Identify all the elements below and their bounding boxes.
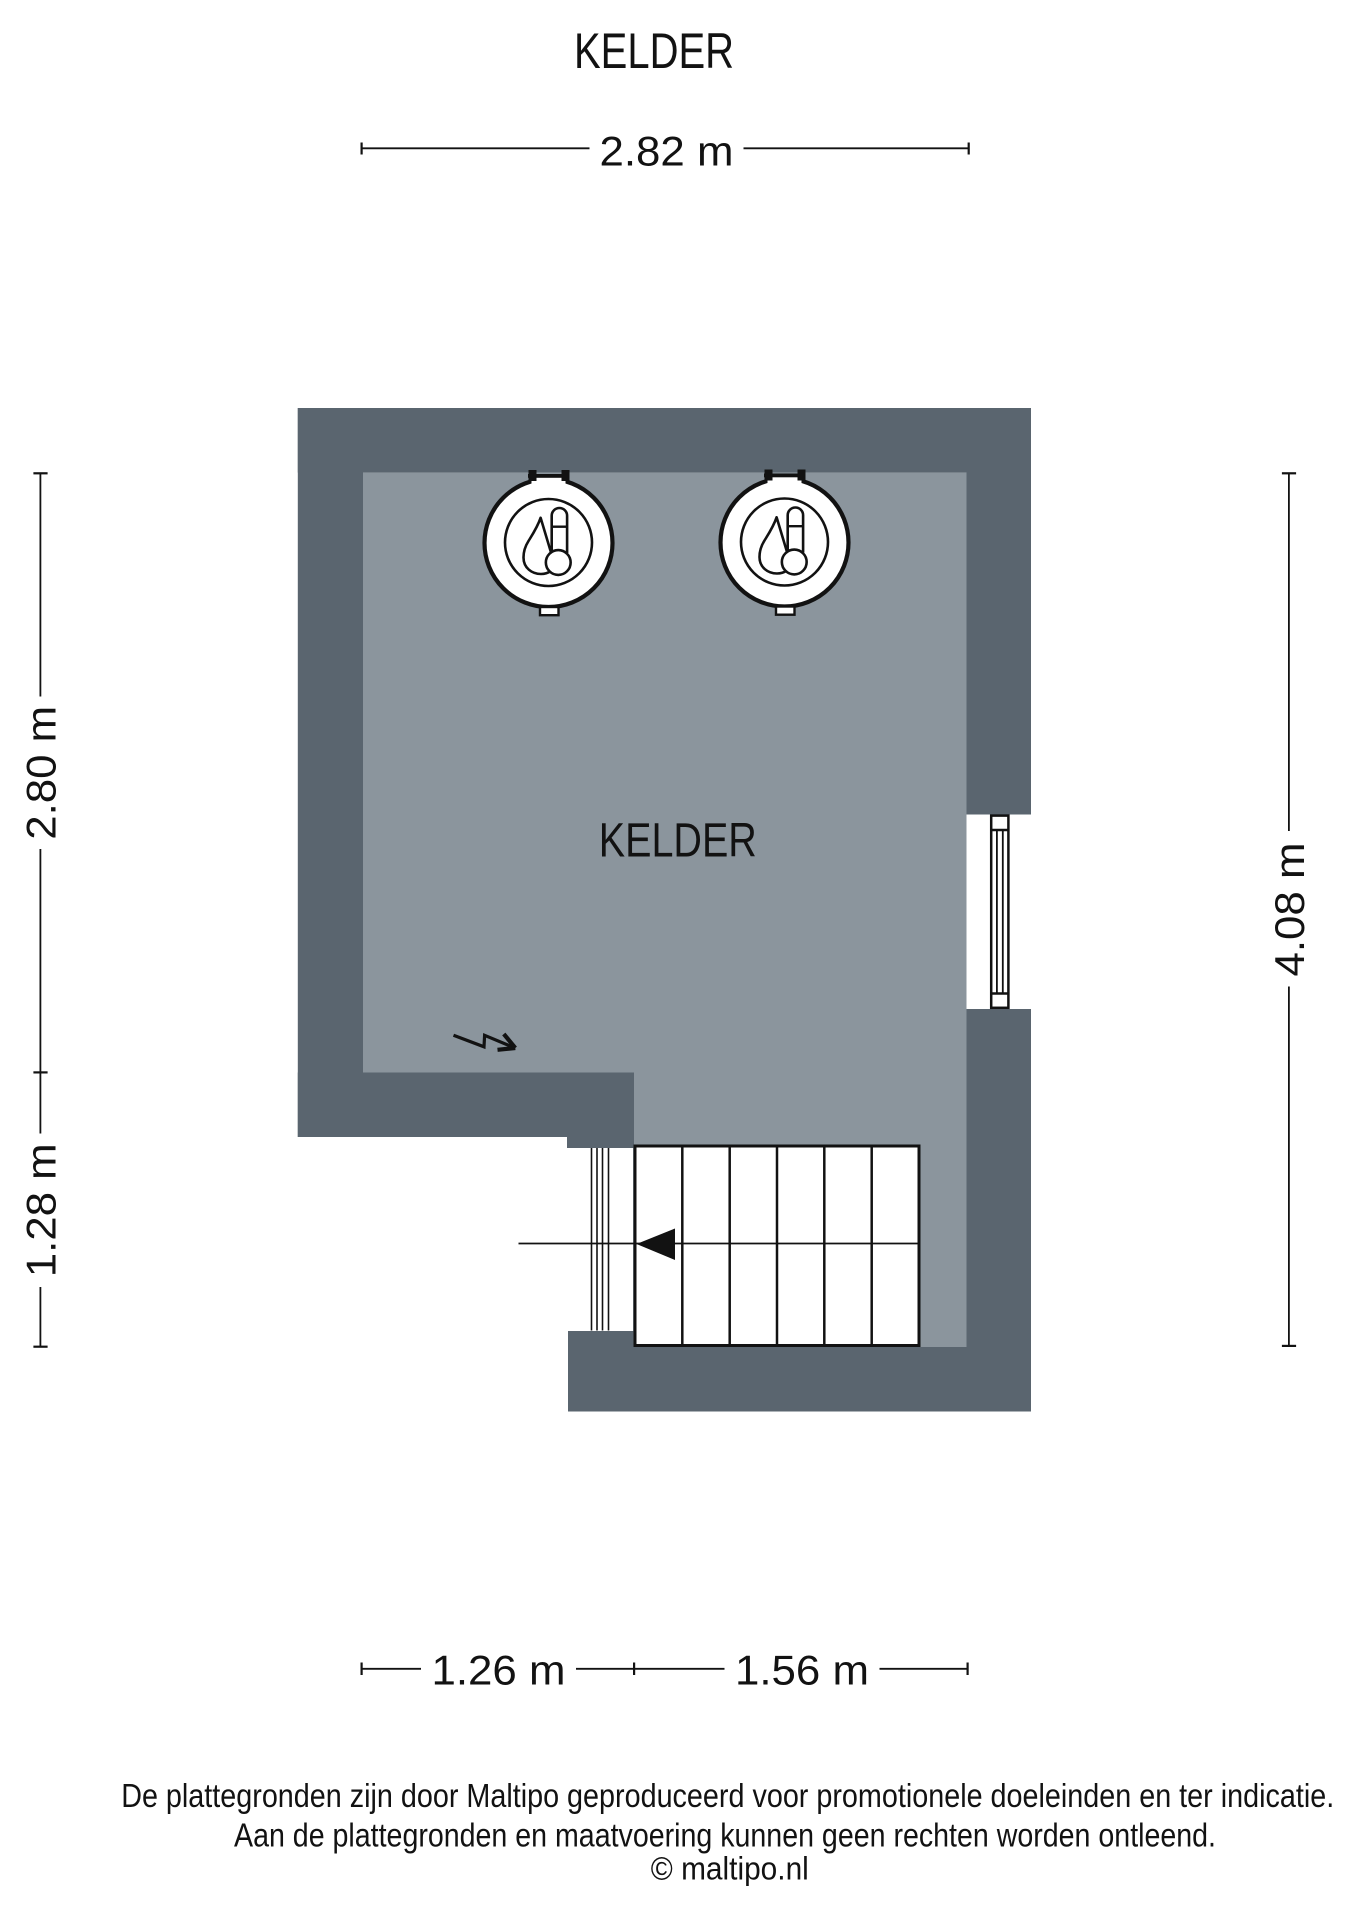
- svg-text:Aan de plattegronden en maatvo: Aan de plattegronden en maatvoering kunn…: [234, 1817, 1216, 1854]
- svg-text:2.80 m: 2.80 m: [17, 706, 64, 840]
- svg-text:1.28 m: 1.28 m: [17, 1143, 64, 1277]
- svg-text:© maltipo.nl: © maltipo.nl: [651, 1851, 809, 1887]
- svg-text:1.56 m: 1.56 m: [735, 1647, 869, 1694]
- svg-text:4.08 m: 4.08 m: [1266, 843, 1313, 977]
- svg-text:De plattegronden zijn door Mal: De plattegronden zijn door Maltipo gepro…: [121, 1777, 1334, 1814]
- svg-text:2.82 m: 2.82 m: [600, 127, 734, 174]
- svg-text:KELDER: KELDER: [574, 23, 734, 79]
- svg-text:KELDER: KELDER: [599, 815, 757, 868]
- svg-text:1.26 m: 1.26 m: [432, 1647, 566, 1694]
